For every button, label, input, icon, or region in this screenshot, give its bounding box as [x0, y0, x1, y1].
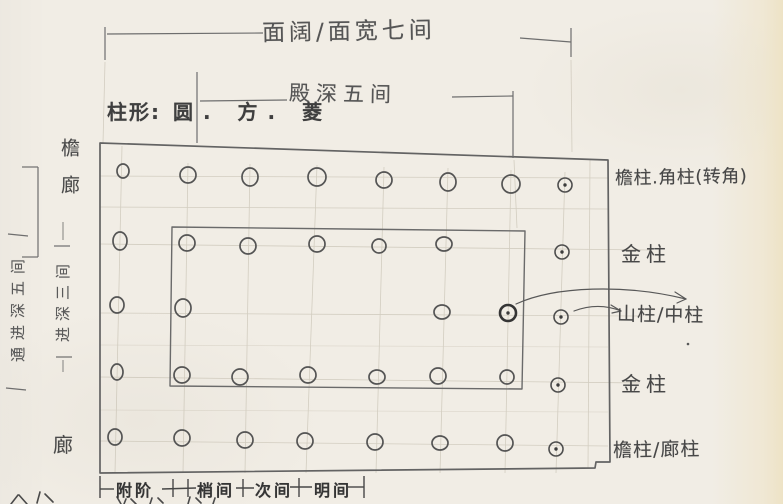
gable-center-column-label: 山柱/中柱: [617, 299, 705, 327]
eave-veranda-column-label: 檐柱/廊柱: [613, 434, 701, 463]
column-circle: [369, 370, 385, 384]
column-circle: [367, 434, 383, 450]
column-circle: [237, 432, 253, 448]
column-circle: [430, 368, 446, 384]
column-circle: [436, 237, 452, 251]
gold-column-lower-label: 金柱: [621, 368, 671, 397]
column-center-dot: [559, 315, 562, 318]
inner-depth-label: 进深三间: [52, 230, 74, 370]
column-center-dot: [554, 447, 557, 450]
column-circle: [497, 435, 513, 451]
column-shape-note-label: 柱形:: [107, 100, 161, 124]
column-center-dot: [556, 383, 559, 386]
cutoff-pencil-strokes: [11, 492, 215, 504]
column-circle: [432, 436, 448, 450]
column-shape-note: 柱形:圆. 方. 菱: [107, 96, 332, 125]
column-circle: [297, 433, 313, 449]
inner-wall: [170, 227, 525, 389]
column-circle: [108, 429, 122, 445]
column-circle: [434, 305, 450, 319]
gold-column-upper-label: 金柱: [621, 238, 671, 267]
outer-wall: [100, 143, 610, 473]
column-center-dot: [560, 250, 563, 253]
column-circle: [174, 367, 190, 383]
total-depth-label: 通进深五间: [7, 227, 29, 387]
eave-corridor-label: 檐廊: [56, 138, 83, 238]
column-center-dot: [563, 183, 566, 186]
facade-width-label: 面阔/面宽七间: [262, 10, 436, 47]
bay-label-mingjian: 明间: [314, 477, 352, 501]
scanned-paper-page: 面阔/面宽七间 殿深五间 柱形:圆. 方. 菱 檐廊 通进深五间 进深三间 廊 …: [0, 0, 783, 504]
column-circle: [372, 239, 386, 253]
bay-label-fujie: 附阶: [116, 477, 154, 501]
column-circle: [300, 367, 316, 383]
eave-corner-column-label: 檐柱.角柱(转角): [615, 162, 748, 190]
column-center-dot: [506, 311, 509, 314]
column-circle: [110, 297, 124, 313]
corridor-label: 廊: [53, 429, 73, 458]
bay-label-cijian: 次间: [255, 477, 293, 501]
column-circle: [174, 430, 190, 446]
column-circle: [232, 369, 248, 385]
column-shape-note-value: 圆. 方. 菱: [173, 100, 332, 124]
column-circle: [175, 299, 191, 317]
column-circle: [309, 236, 325, 252]
bay-label-shaojian: 梢间: [197, 477, 235, 501]
